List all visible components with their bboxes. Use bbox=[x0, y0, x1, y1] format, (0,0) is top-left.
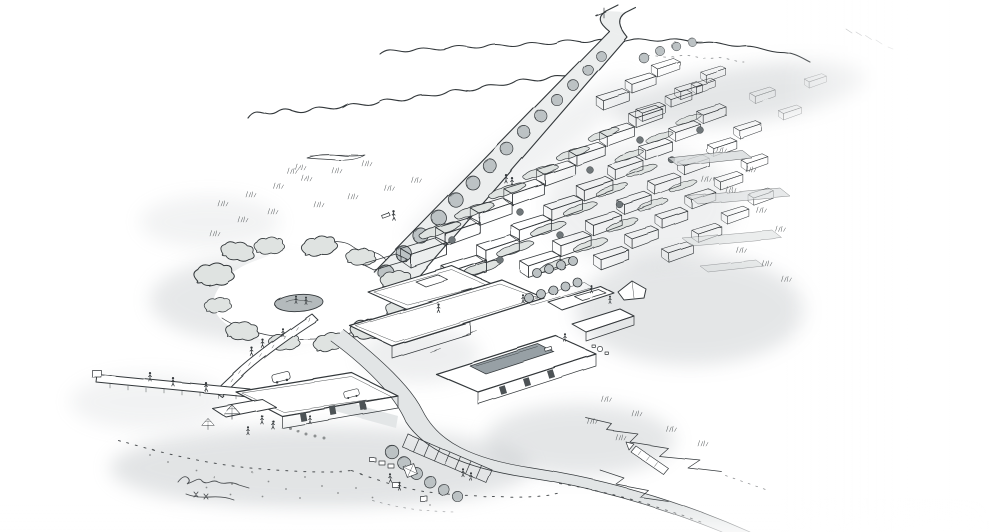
bench bbox=[382, 213, 391, 219]
boardwalk-steps bbox=[92, 370, 101, 377]
right-fade bbox=[780, 0, 990, 532]
bottom-fade bbox=[0, 498, 990, 532]
site-aerial-sketch bbox=[0, 0, 990, 532]
hedgerow-line bbox=[248, 72, 572, 118]
illustration-canvas bbox=[0, 0, 990, 532]
hedgerow-dashes bbox=[640, 55, 744, 62]
